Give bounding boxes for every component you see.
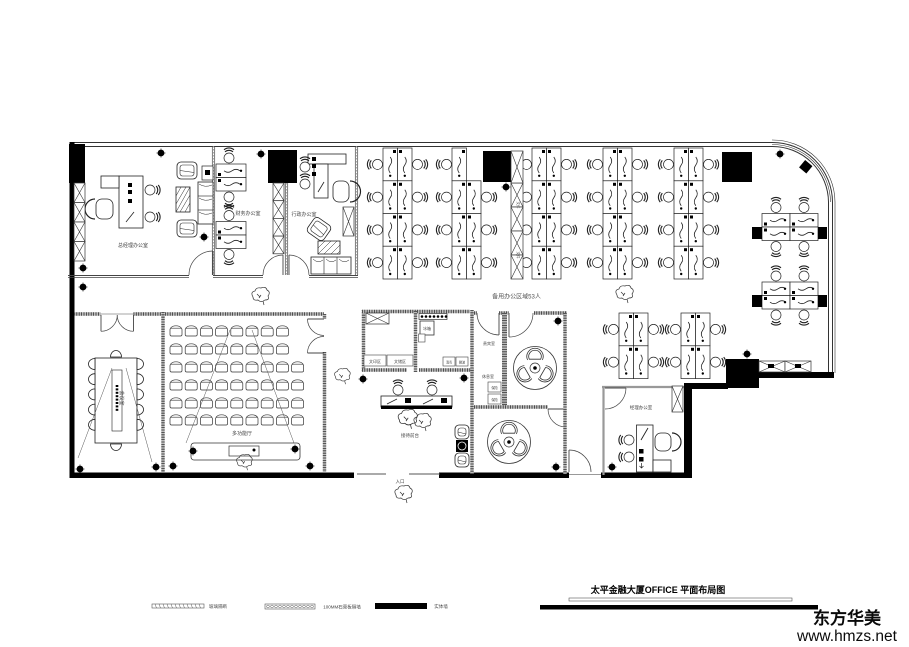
svg-text:100MM石膏板隔墙: 100MM石膏板隔墙 [323,604,361,611]
svg-text:休息室: 休息室 [482,373,494,379]
svg-text:多功能厅: 多功能厅 [232,430,252,437]
svg-text:财务办公室: 财务办公室 [235,210,260,217]
svg-text:太平金融大厦OFFICE 平面布局图: 太平金融大厦OFFICE 平面布局图 [590,584,726,595]
svg-text:www.hmzs.net: www.hmzs.net [796,628,898,645]
svg-text:保险: 保险 [491,397,498,402]
svg-text:实体墙: 实体墙 [434,603,448,610]
svg-text:东方华美: 东方华美 [813,608,882,628]
svg-text:备用办公区域53人: 备用办公区域53人 [492,293,541,301]
svg-text:贵宾室: 贵宾室 [483,340,495,346]
svg-text:行政办公室: 行政办公室 [291,211,316,218]
svg-text:微波: 微波 [459,360,466,365]
svg-text:消毒: 消毒 [446,360,453,365]
svg-text:文储区: 文储区 [394,358,406,364]
svg-text:经理办公室: 经理办公室 [630,404,653,411]
svg-text:冰箱: 冰箱 [423,325,431,331]
svg-text:接待前台: 接待前台 [401,432,419,439]
svg-text:文件: 文件 [516,202,521,210]
svg-text:玻璃隔断: 玻璃隔断 [209,603,227,610]
svg-text:文件: 文件 [516,252,521,260]
svg-text:会议室: 会议室 [118,390,125,405]
svg-text:保险: 保险 [491,385,498,390]
svg-text:文印区: 文印区 [369,358,381,364]
svg-text:总经理办公室: 总经理办公室 [118,242,148,249]
